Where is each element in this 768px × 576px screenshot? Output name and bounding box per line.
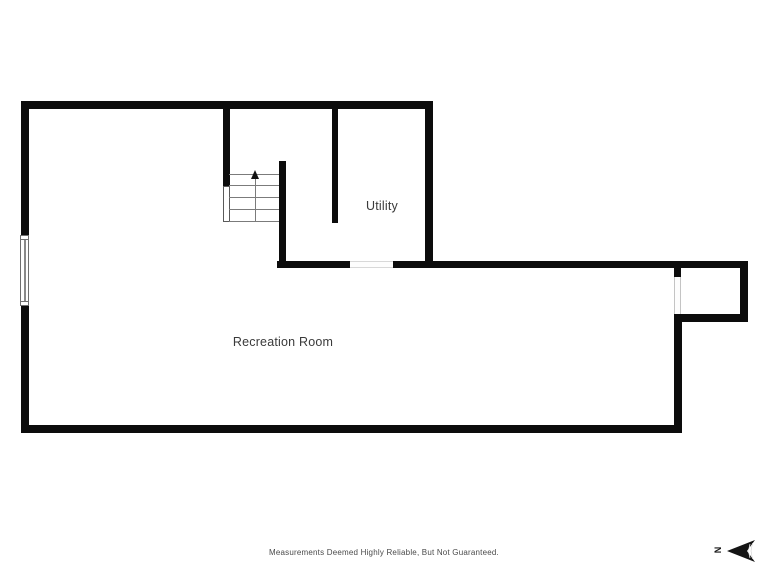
right-wall-lower [674, 314, 682, 433]
window-cap-bottom [21, 301, 28, 302]
utility-room-label: Utility [366, 199, 398, 213]
compass-north-label: N [712, 547, 722, 554]
north-compass: N [708, 537, 758, 565]
right-wall-stub [674, 268, 681, 277]
notch-right-wall [740, 261, 748, 322]
mid-wall-right-of-door [393, 261, 748, 268]
left-wall-upper [21, 101, 29, 235]
stair-right-wall [279, 161, 286, 268]
north-arrow-icon [726, 539, 756, 563]
left-wall-lower [21, 306, 29, 433]
stair-up-arrow-icon [251, 170, 259, 179]
stair-tread [229, 221, 279, 222]
utility-right-wall [425, 101, 433, 268]
stair-tread [229, 197, 279, 198]
stair-tread [229, 185, 279, 186]
top-wall [21, 101, 433, 109]
stair-direction-line [255, 178, 256, 221]
measurement-disclaimer: Measurements Deemed Highly Reliable, But… [0, 548, 768, 557]
bottom-wall [21, 425, 682, 433]
left-wall-window [20, 235, 29, 306]
utility-door-opening [350, 261, 393, 268]
notch-bottom-wall [674, 314, 748, 322]
mid-wall-left-of-door [277, 261, 350, 268]
right-alcove-opening [674, 277, 681, 314]
floorplan-canvas: Utility Recreation Room Measurements Dee… [0, 0, 768, 576]
recreation-room-label: Recreation Room [233, 335, 333, 349]
stair-rail [223, 186, 230, 222]
window-pane-line [24, 240, 26, 301]
stair-tread [229, 209, 279, 210]
utility-partition-wall [332, 109, 338, 223]
